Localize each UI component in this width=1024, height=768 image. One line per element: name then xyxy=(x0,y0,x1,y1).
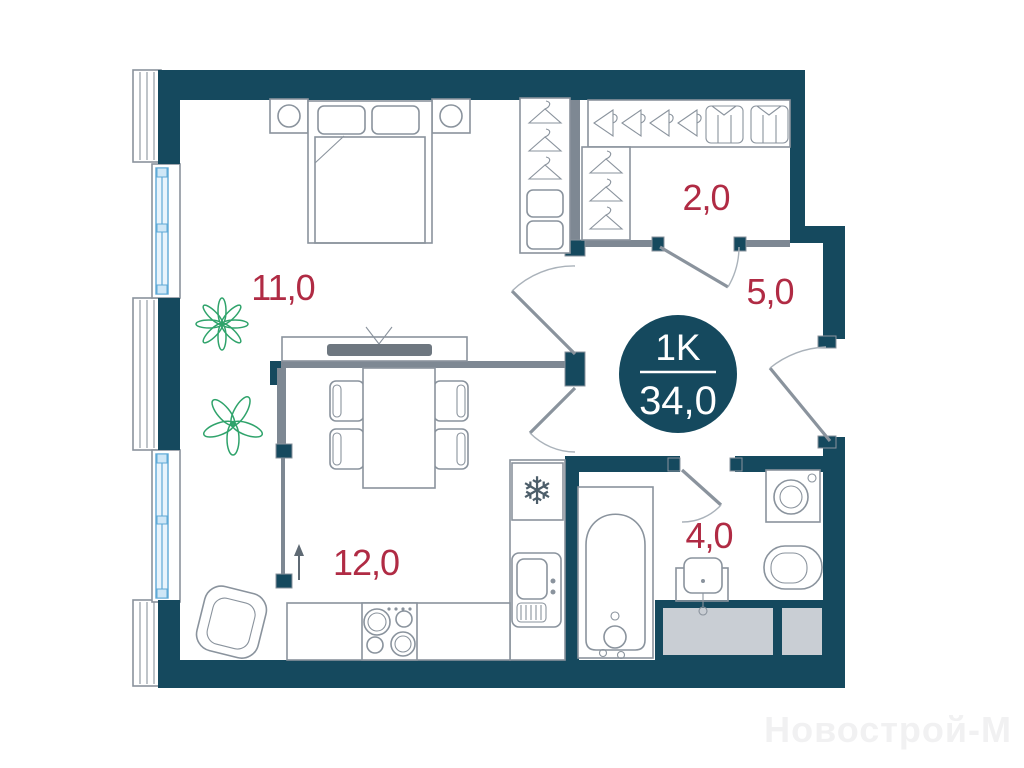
stove xyxy=(362,603,417,660)
dining-table xyxy=(363,368,435,488)
fridge: ❄ xyxy=(512,463,563,520)
nightstand-left xyxy=(270,99,308,133)
bathtub xyxy=(578,487,653,659)
room-label-bedroom: 11,0 xyxy=(251,267,314,308)
dining-set xyxy=(330,368,468,488)
bedroom-door xyxy=(512,266,575,354)
washing-machine xyxy=(766,470,820,522)
plant-bedroom xyxy=(196,298,248,350)
room-label-bathroom: 4,0 xyxy=(685,515,732,556)
tv-unit xyxy=(282,327,467,361)
wall-segment xyxy=(158,660,845,688)
wall-segment xyxy=(823,243,845,339)
wall-segment xyxy=(565,456,680,472)
badge-total-area: 34,0 xyxy=(639,379,717,423)
chair xyxy=(434,429,468,469)
wall-segment xyxy=(823,437,845,663)
window-living xyxy=(152,450,180,602)
wall-segment xyxy=(790,226,845,243)
wardrobe-door xyxy=(660,247,739,287)
chair xyxy=(434,381,468,421)
room-label-living-kitchen: 12,0 xyxy=(333,542,399,583)
chair xyxy=(330,381,364,421)
wall-segment xyxy=(158,298,180,450)
partition xyxy=(281,361,571,368)
room-label-hallway: 5,0 xyxy=(746,271,793,312)
living-room-door xyxy=(530,388,575,452)
apartment-badge: 1K 34,0 xyxy=(619,315,737,433)
wall-segment xyxy=(158,70,805,100)
vent-shaft xyxy=(663,608,773,655)
sliding-door xyxy=(281,458,304,580)
bedroom-closet xyxy=(520,98,570,253)
walls xyxy=(158,70,845,688)
nightstand-right xyxy=(432,99,470,133)
wall-segment xyxy=(790,100,805,226)
chair xyxy=(330,429,364,469)
plant-living xyxy=(202,394,264,455)
slide-direction-arrow-icon xyxy=(294,544,304,556)
wardrobe-unit xyxy=(582,100,790,240)
vent-shaft xyxy=(782,608,822,655)
window-bedroom xyxy=(152,164,180,298)
badge-type: 1K xyxy=(655,327,701,368)
partition xyxy=(580,240,658,247)
tv-screen xyxy=(327,344,432,356)
partition xyxy=(277,368,286,446)
snowflake-icon: ❄ xyxy=(521,471,553,513)
entrance-door xyxy=(770,347,830,441)
room-label-wardrobe: 2,0 xyxy=(682,177,729,218)
double-bed xyxy=(308,101,432,243)
floor-plan-page: ❄ xyxy=(0,0,1024,768)
partition xyxy=(570,100,580,240)
floor-plan-drawing: ❄ xyxy=(0,0,1024,768)
watermark: Новострой-М xyxy=(764,709,1012,750)
toilet xyxy=(764,546,822,589)
vent-shafts xyxy=(663,608,822,655)
wall-segment xyxy=(565,456,579,660)
armchair xyxy=(193,582,270,661)
wall-segment xyxy=(158,100,180,164)
